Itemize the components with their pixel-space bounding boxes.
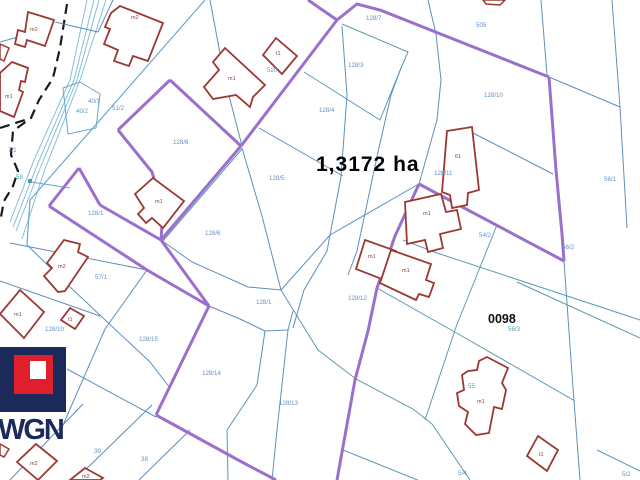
svg-text:t1: t1 — [276, 51, 281, 57]
svg-text:505: 505 — [476, 22, 487, 29]
svg-text:128/11: 128/11 — [434, 170, 453, 177]
svg-text:128/10: 128/10 — [484, 92, 503, 99]
svg-text:57/1: 57/1 — [95, 274, 108, 281]
svg-text:m1: m1 — [14, 312, 22, 318]
svg-text:58: 58 — [16, 174, 23, 181]
svg-text:1,3172 ha: 1,3172 ha — [316, 153, 420, 176]
svg-text:m1: m1 — [402, 268, 410, 274]
svg-text:m2: m2 — [58, 264, 66, 270]
svg-text:128/6: 128/6 — [205, 230, 221, 237]
svg-text:7/1: 7/1 — [8, 147, 17, 154]
svg-text:128/13: 128/13 — [279, 400, 298, 407]
svg-text:128/1: 128/1 — [256, 299, 272, 306]
svg-text:56/2: 56/2 — [562, 244, 575, 251]
svg-text:128/14: 128/14 — [202, 370, 221, 377]
svg-text:m2: m2 — [30, 27, 38, 33]
svg-text:51/2: 51/2 — [112, 105, 125, 112]
svg-text:m1: m1 — [368, 254, 376, 260]
svg-text:61: 61 — [455, 154, 461, 160]
svg-text:128/7: 128/7 — [366, 15, 382, 22]
svg-text:54/2: 54/2 — [479, 232, 492, 239]
svg-text:39: 39 — [94, 448, 101, 455]
svg-text:128/1: 128/1 — [88, 210, 104, 217]
svg-text:128/10: 128/10 — [45, 326, 64, 333]
svg-text:m1: m1 — [477, 399, 485, 405]
svg-text:128/12: 128/12 — [348, 295, 367, 302]
svg-text:38: 38 — [141, 456, 148, 463]
svg-text:m1: m1 — [5, 94, 13, 100]
svg-text:t1: t1 — [68, 317, 73, 323]
svg-text:40/1: 40/1 — [88, 98, 101, 105]
svg-text:128/3: 128/3 — [348, 62, 364, 69]
svg-text:t1: t1 — [539, 452, 544, 458]
svg-text:55: 55 — [468, 383, 475, 390]
svg-text:56/3: 56/3 — [508, 326, 521, 333]
svg-text:m2: m2 — [131, 15, 139, 21]
svg-text:m1: m1 — [423, 211, 431, 217]
svg-text:m1: m1 — [228, 76, 236, 82]
svg-text:128/15: 128/15 — [139, 336, 158, 343]
svg-text:40/2: 40/2 — [76, 108, 89, 115]
svg-text:m2: m2 — [82, 474, 90, 480]
svg-text:128/4: 128/4 — [319, 107, 335, 114]
svg-text:m2: m2 — [30, 461, 38, 467]
svg-text:128/5: 128/5 — [269, 175, 285, 182]
svg-text:56/1: 56/1 — [604, 176, 617, 183]
svg-text:WGN: WGN — [0, 414, 63, 446]
svg-text:0098: 0098 — [488, 312, 516, 326]
svg-text:m1: m1 — [155, 199, 163, 205]
svg-text:5/4: 5/4 — [458, 470, 467, 477]
svg-text:128/8: 128/8 — [173, 139, 189, 146]
svg-text:5/2: 5/2 — [622, 471, 631, 478]
svg-text:520: 520 — [267, 67, 278, 74]
